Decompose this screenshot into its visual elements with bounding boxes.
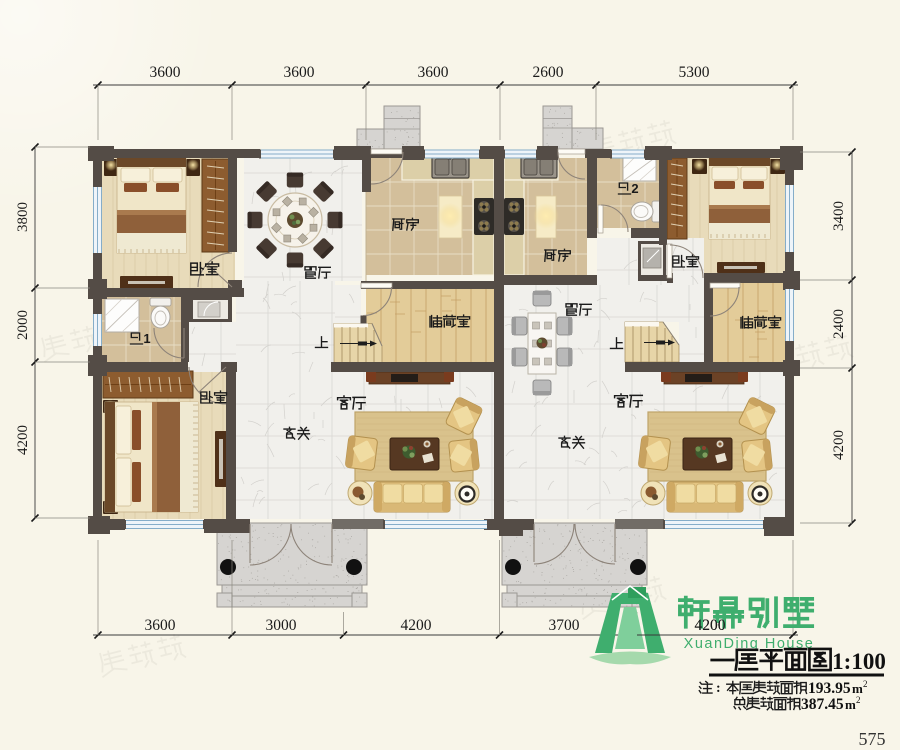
svg-text:575: 575 [859, 729, 886, 749]
svg-text:m: m [852, 681, 863, 696]
svg-text:2: 2 [631, 181, 638, 196]
svg-text:4200: 4200 [695, 617, 726, 634]
svg-text::: : [716, 681, 721, 696]
svg-text:3400: 3400 [831, 201, 847, 231]
svg-text:3000: 3000 [266, 617, 297, 634]
svg-text:5300: 5300 [679, 64, 710, 81]
svg-text:2: 2 [856, 695, 861, 705]
svg-text:3600: 3600 [150, 64, 181, 81]
svg-text:4200: 4200 [401, 617, 432, 634]
svg-text:1:100: 1:100 [832, 649, 886, 674]
svg-text:3600: 3600 [418, 64, 449, 81]
svg-text:2000: 2000 [15, 310, 31, 340]
svg-text:m: m [845, 697, 856, 712]
svg-text:2400: 2400 [831, 309, 847, 339]
svg-text:387.45: 387.45 [801, 696, 844, 713]
svg-text:3600: 3600 [284, 64, 315, 81]
svg-text:193.95: 193.95 [808, 680, 851, 697]
svg-text:3600: 3600 [145, 617, 176, 634]
svg-text:2600: 2600 [533, 64, 564, 81]
svg-text:3700: 3700 [549, 617, 580, 634]
svg-text:3800: 3800 [15, 202, 31, 232]
svg-text:2: 2 [863, 679, 868, 689]
svg-text:4200: 4200 [15, 425, 31, 455]
svg-text:1: 1 [143, 331, 150, 346]
svg-text:4200: 4200 [831, 430, 847, 460]
